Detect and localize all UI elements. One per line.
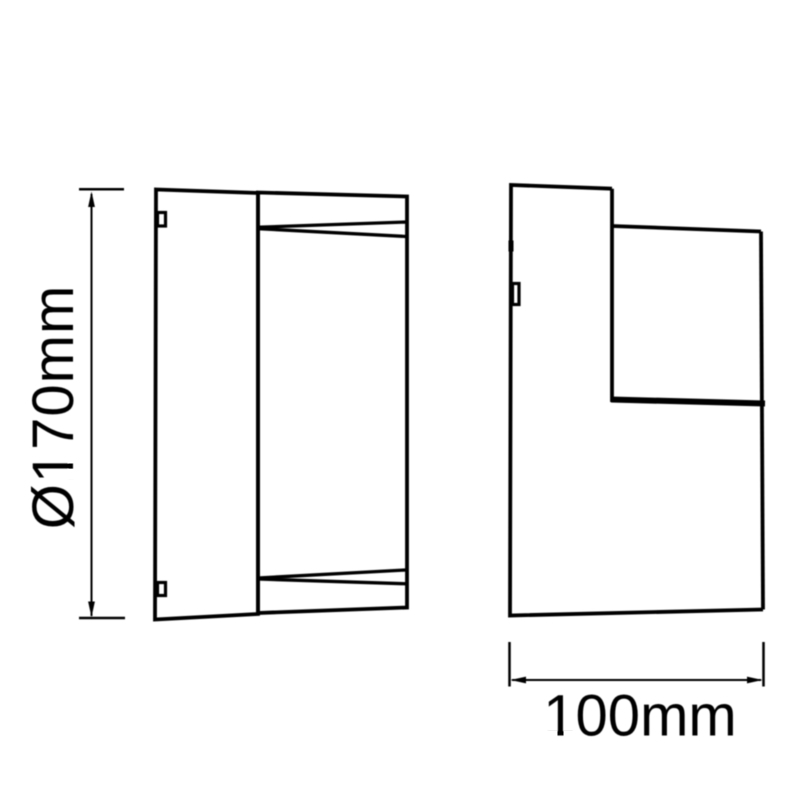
svg-text:Ø170mm: Ø170mm bbox=[21, 285, 86, 530]
svg-text:100mm: 100mm bbox=[543, 684, 736, 749]
